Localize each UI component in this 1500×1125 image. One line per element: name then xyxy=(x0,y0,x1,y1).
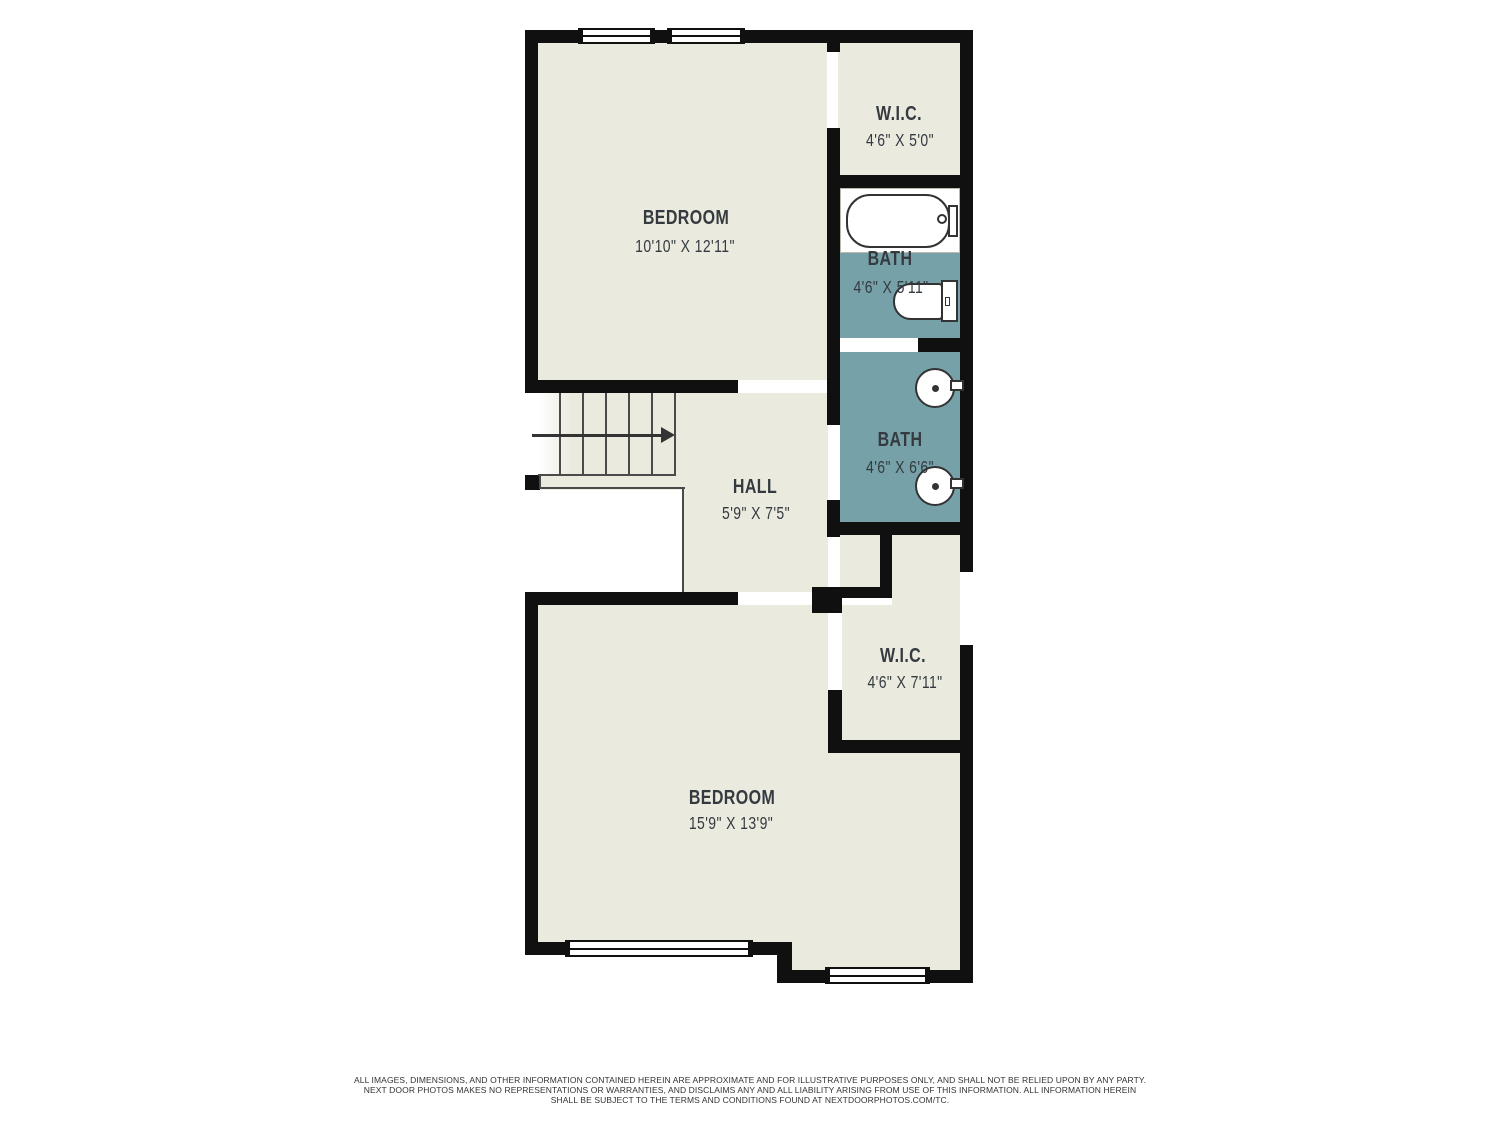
sink-spout xyxy=(950,478,964,489)
wall-segment xyxy=(525,592,738,605)
room-dims-hall: 5'9" X 7'5" xyxy=(722,503,790,524)
wall-segment xyxy=(833,522,960,535)
wall-segment xyxy=(960,30,973,572)
window xyxy=(565,940,753,957)
bathtub-knob xyxy=(937,214,947,224)
room-label-bath-2: BATH xyxy=(878,429,923,452)
closet-nook-floor xyxy=(840,533,880,587)
room-label-bath-1: BATH xyxy=(868,248,913,271)
wall-segment xyxy=(525,380,738,393)
wall-segment xyxy=(827,30,840,52)
room-label-bedroom-1: BEDROOM xyxy=(643,207,729,230)
wall-segment xyxy=(918,338,960,352)
bedroom-2-floor-extension xyxy=(792,942,960,970)
bathtub xyxy=(846,194,950,248)
disclaimer-line: ALL IMAGES, DIMENSIONS, AND OTHER INFORM… xyxy=(250,1075,1250,1085)
bedroom-2-floor-left xyxy=(538,605,828,942)
sink-drain-icon xyxy=(932,385,939,392)
room-dims-wic-2: 4'6" X 7'11" xyxy=(867,672,942,693)
wall-segment xyxy=(525,475,540,490)
stair-direction-arrow xyxy=(532,434,664,437)
stairwell-edge xyxy=(682,487,684,592)
room-dims-bath-1: 4'6" X 5'11" xyxy=(853,277,928,298)
wall-segment xyxy=(960,645,973,983)
window xyxy=(578,28,655,44)
window xyxy=(667,28,745,44)
room-dims-bedroom-2: 15'9" X 13'9" xyxy=(689,813,773,834)
sink-drain-icon xyxy=(932,483,939,490)
room-dims-bedroom-1: 10'10" X 12'11" xyxy=(635,236,735,257)
disclaimer-line: NEXT DOOR PHOTOS MAKES NO REPRESENTATION… xyxy=(250,1085,1250,1095)
room-label-bedroom-2: BEDROOM xyxy=(689,787,775,810)
sink-spout xyxy=(950,380,964,391)
stair-arrow-head-icon xyxy=(661,427,675,443)
stair-landing-edge xyxy=(539,487,685,489)
wall-segment xyxy=(828,740,962,753)
wall-segment xyxy=(838,175,960,188)
wall-segment xyxy=(812,587,842,613)
room-label-wic-1: W.I.C. xyxy=(876,103,922,126)
room-dims-bath-2: 4'6" X 6'6" xyxy=(866,457,934,478)
room-label-hall: HALL xyxy=(733,476,777,499)
room-dims-wic-1: 4'6" X 5'0" xyxy=(866,130,934,151)
disclaimer: ALL IMAGES, DIMENSIONS, AND OTHER INFORM… xyxy=(250,1075,1250,1105)
floor-plan: BEDROOM 10'10" X 12'11" W.I.C. 4'6" X 5'… xyxy=(0,0,1500,1125)
disclaimer-line: SHALL BE SUBJECT TO THE TERMS AND CONDIT… xyxy=(250,1095,1250,1105)
wall-segment xyxy=(827,128,840,425)
wic-2-floor-upper xyxy=(892,535,960,605)
bathtub-faucet xyxy=(948,205,958,237)
room-label-wic-2: W.I.C. xyxy=(880,645,926,668)
wall-segment xyxy=(525,592,538,955)
window xyxy=(825,967,930,984)
toilet-flush-button xyxy=(945,297,950,306)
bedroom-2-floor-right xyxy=(828,753,960,942)
wall-segment xyxy=(525,30,538,393)
